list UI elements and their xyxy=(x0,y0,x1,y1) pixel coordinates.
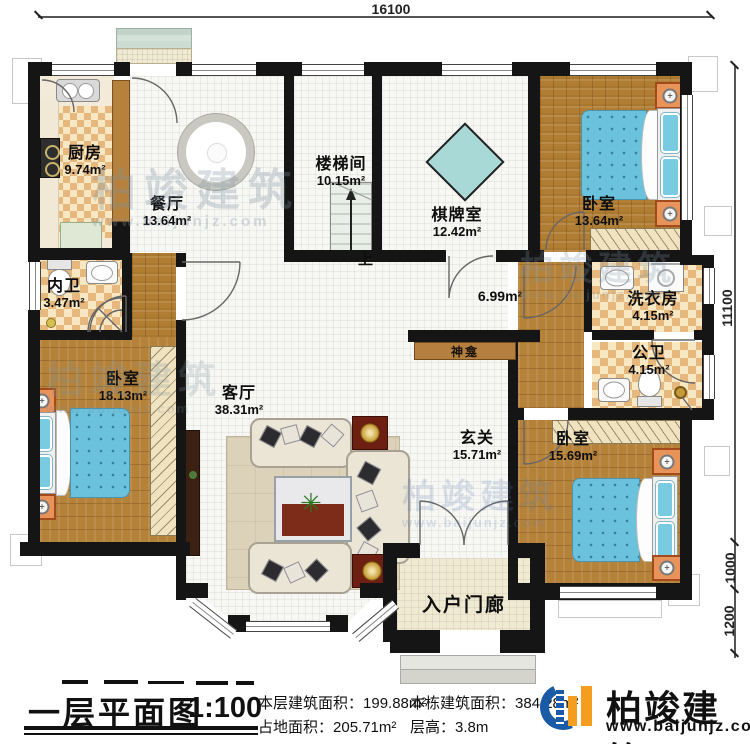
dim-right-label: 1200 xyxy=(721,591,737,651)
floor-drain-icon xyxy=(46,318,56,328)
eave-outline xyxy=(688,56,718,92)
wall xyxy=(182,583,208,598)
wall xyxy=(512,62,570,76)
washing-machine-icon xyxy=(648,258,684,292)
window xyxy=(703,268,715,304)
wall xyxy=(694,330,702,340)
brand-url: www.baijunjz.com xyxy=(606,718,750,736)
nightstand-icon: + xyxy=(652,555,682,581)
wall xyxy=(592,330,654,340)
porch-step xyxy=(400,669,536,684)
window xyxy=(302,64,364,76)
dim-right-label: 1000 xyxy=(722,538,738,598)
window xyxy=(681,95,693,220)
eave-outline xyxy=(704,446,730,476)
wall xyxy=(20,542,190,556)
title-underline xyxy=(24,733,258,735)
dim-top-label: 16100 xyxy=(360,1,422,17)
bed-icon xyxy=(572,478,640,562)
stairs-up-label: 上 xyxy=(358,252,374,269)
wall xyxy=(176,320,186,600)
stat-footprint: 占地面积：205.71m² xyxy=(258,716,396,737)
wall xyxy=(568,408,714,420)
stat-label: 本层建筑面积： xyxy=(258,695,363,712)
title-overline xyxy=(148,681,184,684)
stat-label: 本栋建筑面积： xyxy=(410,695,515,712)
sofa-cushion xyxy=(261,559,284,582)
sofa-cushion xyxy=(259,425,282,448)
wall xyxy=(382,250,446,262)
title-overline xyxy=(62,680,88,684)
dim-tick xyxy=(34,10,43,19)
sink-bowl xyxy=(78,83,94,99)
stat-value: 3.8m xyxy=(455,719,488,736)
wall xyxy=(284,76,294,252)
eave-outline xyxy=(558,600,662,618)
sofa-cushion xyxy=(321,424,345,448)
room-label-foyer: 玄关15.71m² xyxy=(453,430,501,462)
fridge-icon xyxy=(60,222,102,249)
bed-icon xyxy=(581,110,647,200)
pillow xyxy=(661,157,680,197)
hall-area-label: 6.99m² xyxy=(478,289,522,305)
stairs-icon xyxy=(330,182,372,252)
dim-tick xyxy=(706,10,715,19)
wall xyxy=(586,250,692,262)
room-label-chess: 棋牌室12.42m² xyxy=(431,207,482,239)
wall xyxy=(496,250,544,262)
stat-value: 205.71m² xyxy=(333,719,396,736)
bed-headboard xyxy=(652,476,678,564)
bath-sink-icon xyxy=(86,261,118,284)
wall xyxy=(176,62,192,76)
room-label-bedroom-br: 卧室15.69m² xyxy=(549,431,597,463)
wall xyxy=(408,330,540,342)
room-label-living: 客厅38.31m² xyxy=(215,385,263,417)
room-label-laundry: 洗衣房4.15m² xyxy=(627,291,678,323)
wall xyxy=(256,62,302,76)
wall xyxy=(530,543,545,642)
wall xyxy=(372,76,382,252)
window xyxy=(29,262,41,310)
wall xyxy=(383,543,397,642)
tv-cabinet-icon xyxy=(184,430,200,556)
room-label-public-bath: 公卫4.15m² xyxy=(628,345,669,377)
floorplan-page: 16100 11100 1000 1200 xyxy=(0,0,750,744)
shrine-label: 神龛 xyxy=(451,345,479,359)
room-label-dining: 餐厅13.64m² xyxy=(143,196,191,228)
window xyxy=(703,355,715,399)
wall xyxy=(28,330,132,340)
room-label-stairwell: 楼梯间10.15m² xyxy=(315,156,366,188)
wall xyxy=(680,420,692,600)
sofa-cushion xyxy=(356,516,381,541)
wall xyxy=(500,630,545,653)
room-label-porch: 入户门廊 xyxy=(422,595,506,616)
pillow xyxy=(656,522,674,559)
wall xyxy=(28,310,40,544)
sofa-icon xyxy=(248,542,352,594)
dining-table-center xyxy=(207,143,227,163)
room-label-bedroom-tr: 卧室13.64m² xyxy=(575,196,623,228)
wall xyxy=(364,62,442,76)
window xyxy=(570,64,656,76)
wall xyxy=(122,253,132,340)
title-overline xyxy=(104,680,138,684)
pillow xyxy=(656,481,674,518)
window xyxy=(560,586,656,599)
plan-scale: 1:100 xyxy=(188,692,262,725)
wall xyxy=(28,248,130,260)
stat-label: 占地面积： xyxy=(258,719,333,736)
wardrobe-icon xyxy=(590,228,682,252)
nightstand-icon: + xyxy=(652,448,682,475)
wall xyxy=(28,62,40,262)
wall xyxy=(584,262,592,332)
kitchen-sink-icon xyxy=(56,79,100,102)
laundry-sink-icon xyxy=(600,266,634,290)
window xyxy=(52,64,114,76)
room-label-kitchen: 厨房9.74m² xyxy=(64,145,105,177)
wall xyxy=(176,253,186,267)
room-label-inner-bath: 内卫3.47m² xyxy=(43,278,84,310)
wall xyxy=(390,630,440,653)
sofa-cushion xyxy=(283,561,306,584)
wall xyxy=(112,222,130,250)
sofa-cushion xyxy=(357,461,381,485)
wall xyxy=(528,76,540,252)
sofa-cushion xyxy=(280,424,301,445)
title-overline xyxy=(236,681,254,685)
sofa-cushion xyxy=(299,425,322,448)
coffee-table-icon: ✳ xyxy=(274,476,352,542)
window xyxy=(192,64,256,76)
stat-label: 层高： xyxy=(410,719,455,736)
bedroom-left-vestibule-floor xyxy=(132,253,176,339)
plant-icon: ✳ xyxy=(300,490,322,516)
sofa-icon xyxy=(250,418,352,468)
title-overline xyxy=(196,681,228,685)
window xyxy=(246,621,330,632)
wall xyxy=(114,62,130,76)
brand-logo-icon xyxy=(538,676,600,736)
kitchen-cabinet xyxy=(112,80,130,222)
room-label-bedroom-left: 卧室18.13m² xyxy=(99,371,147,403)
stat-floor-area: 本层建筑面积：199.88m² xyxy=(258,692,426,713)
bath-sink-icon xyxy=(598,378,630,402)
wall xyxy=(508,342,518,600)
terrace-floor xyxy=(116,28,192,50)
eave-outline xyxy=(704,206,732,236)
dim-right-label: 11100 xyxy=(719,278,735,338)
title-underline xyxy=(24,726,258,730)
sofa-cushion xyxy=(304,558,328,582)
bed-icon xyxy=(70,408,130,498)
window xyxy=(442,64,512,76)
stove-icon xyxy=(40,138,60,178)
pillow xyxy=(661,113,680,153)
side-table-icon xyxy=(352,416,388,450)
sofa-cushion xyxy=(355,489,378,512)
mop-icon xyxy=(674,386,687,399)
shrine-cabinet: 神龛 xyxy=(414,342,516,360)
sink-bowl xyxy=(62,83,78,99)
stat-floor-height: 层高：3.8m xyxy=(410,716,488,737)
